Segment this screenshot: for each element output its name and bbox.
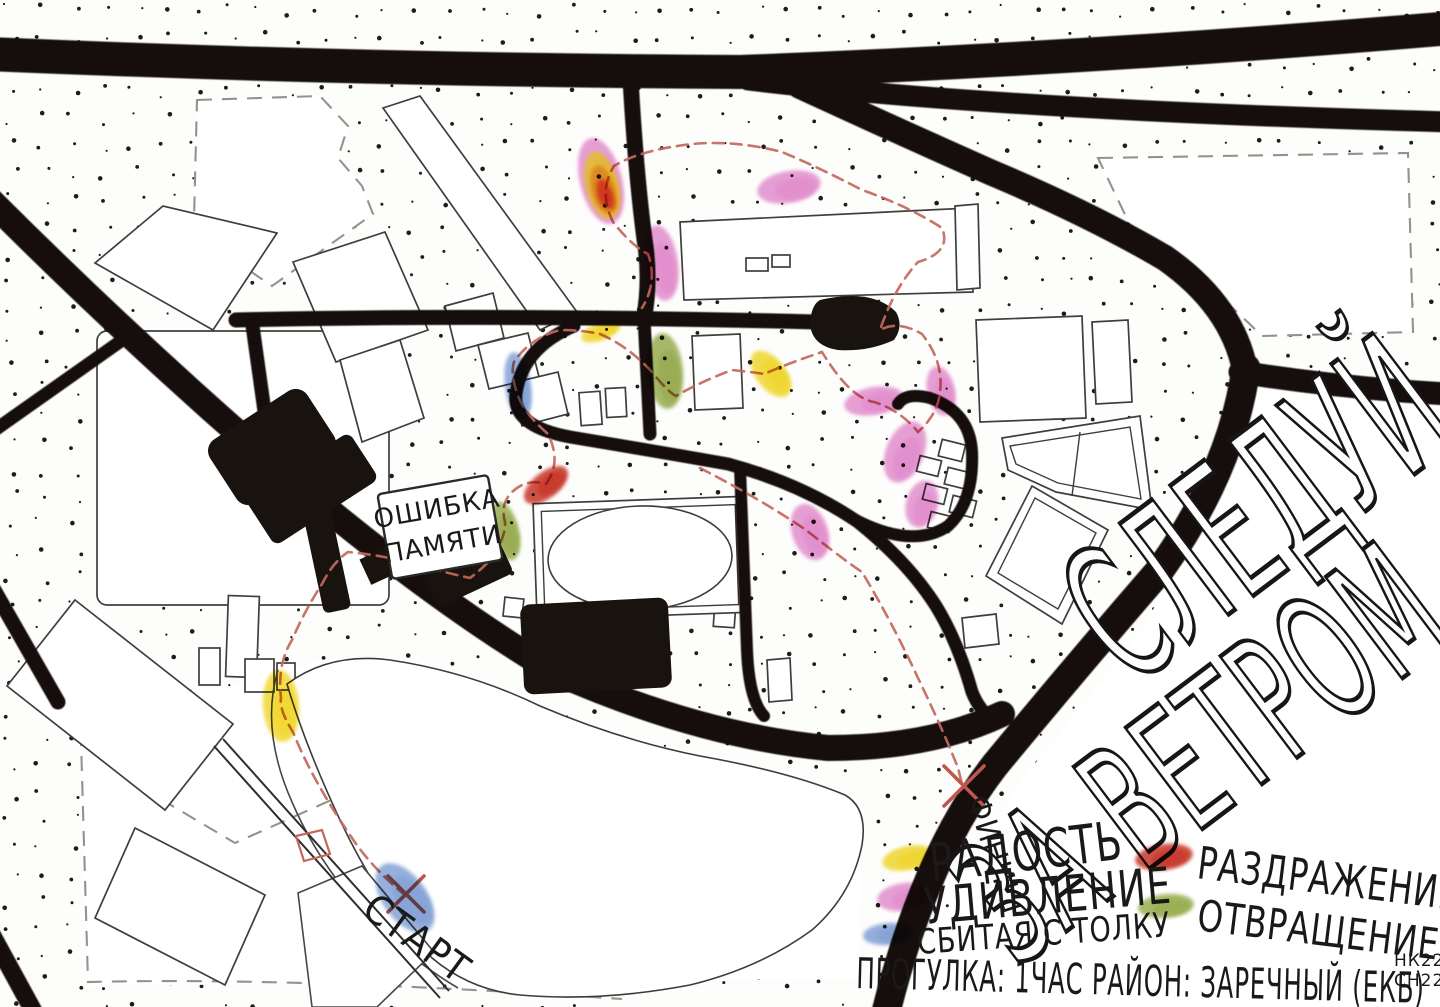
signature-line1: НК22 xyxy=(1394,951,1440,971)
building xyxy=(772,255,790,267)
emotion-mark-surprise xyxy=(755,166,824,209)
building xyxy=(579,391,602,425)
building xyxy=(962,614,999,648)
emotion-mark-surprise xyxy=(842,382,906,420)
building-long xyxy=(680,208,973,300)
building xyxy=(199,648,220,685)
building xyxy=(605,387,626,417)
building xyxy=(976,316,1086,422)
road-center-horizontal xyxy=(236,317,816,322)
building xyxy=(767,658,792,702)
solid-teardrop xyxy=(810,296,900,350)
emotion-mark-irritation xyxy=(570,133,632,229)
building xyxy=(746,258,768,271)
emotion-mark-surprise xyxy=(875,415,934,489)
map-canvas: ОШИБКА ПАМЯТИ СТАРТ ФИНИШ СЛЕДУЙ ЗА ВЕТР… xyxy=(0,0,1440,1007)
road-stadium-east xyxy=(740,468,764,716)
road-top xyxy=(0,28,1440,72)
building xyxy=(692,334,743,410)
road-stub xyxy=(0,935,34,1007)
emotion-mark-joy xyxy=(743,343,800,404)
building xyxy=(1092,320,1132,404)
road-center-vertical xyxy=(630,70,648,318)
signature-line2: СН22 xyxy=(1394,971,1440,991)
building xyxy=(955,204,980,290)
hand-drawn-walk-map: ОШИБКА ПАМЯТИ СТАРТ ФИНИШ СЛЕДУЙ ЗА ВЕТР… xyxy=(0,0,1440,1007)
